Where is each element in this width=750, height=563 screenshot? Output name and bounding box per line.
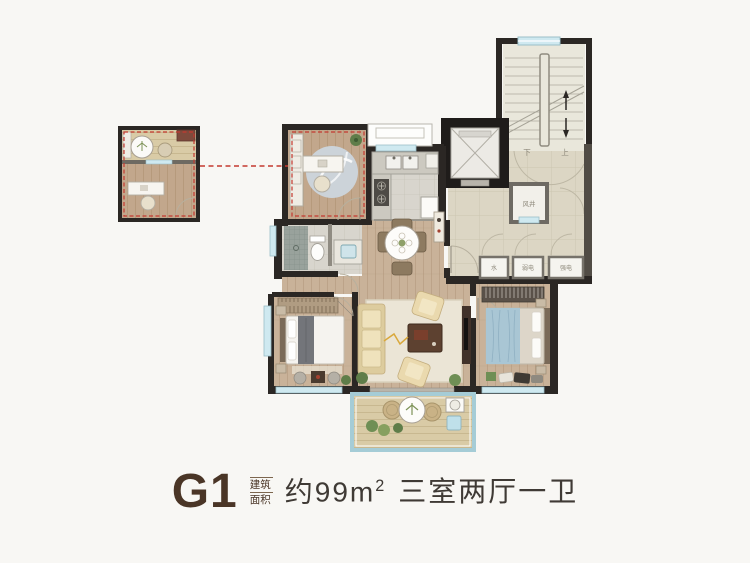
nightstand: [536, 366, 546, 374]
sofa: [358, 304, 385, 374]
plant-icon: [449, 374, 461, 386]
tv-console: [462, 306, 471, 364]
bucket-icon: [447, 416, 461, 430]
hallway-floor: [282, 276, 362, 294]
bedroom2-south-window: [482, 387, 544, 393]
kitchen-window: [376, 145, 416, 151]
master-south-window: [276, 387, 342, 393]
toilet-icon: [310, 236, 325, 261]
stool: [328, 372, 340, 384]
water-meter-label: 水: [491, 264, 497, 272]
plant-icon: [378, 424, 390, 436]
nightstand: [276, 306, 286, 315]
rattan-chair: [423, 403, 441, 421]
shower-area: [284, 226, 308, 270]
master-wardrobe: [278, 298, 338, 313]
elevator-door: [461, 180, 489, 186]
bedroom2-bed: [486, 308, 550, 364]
nightstand: [536, 299, 546, 307]
sideboard: [434, 212, 444, 242]
detail-stool: [158, 143, 172, 157]
nightstand: [276, 364, 286, 373]
bathroom-window: [270, 226, 276, 256]
stair-up-label: 上: [561, 148, 569, 157]
plant-icon: [393, 423, 403, 433]
unit-code: G1: [172, 468, 238, 516]
tv-icon: [464, 318, 468, 350]
balcony: [352, 394, 474, 450]
wind-shaft-label: 风井: [523, 199, 537, 208]
area-value: 约99m: [285, 476, 375, 507]
area-label-line2: 面积: [250, 492, 273, 508]
caption: G1 建筑 面积 约99m2三室两厅一卫: [0, 468, 750, 516]
bathroom-partition: [328, 224, 332, 266]
stool: [294, 372, 306, 384]
elevator: [441, 118, 509, 188]
room-config: 三室两厅一卫: [398, 476, 578, 507]
study-detail-callout: [120, 128, 288, 220]
living-room: [356, 290, 471, 388]
floor-plan-page: 下 上 风井 水 弱电 强电: [0, 0, 750, 563]
detail-chair: [141, 196, 155, 210]
plant-icon: [341, 375, 351, 385]
study-chair: [314, 176, 330, 192]
weak-electric-label: 弱电: [522, 264, 534, 272]
equipment-platform: [368, 124, 432, 146]
coffee-table: [408, 324, 442, 352]
caption-main-text: 约99m2三室两厅一卫: [285, 478, 579, 506]
master-bed: [280, 316, 344, 364]
dining-chair: [392, 262, 412, 275]
wind-shaft-window: [519, 217, 539, 223]
master-bay-window: [264, 306, 271, 356]
stair-rail: [540, 54, 549, 146]
area-value-sup: 2: [375, 477, 386, 495]
pillow: [532, 338, 541, 358]
wind-shaft: 风井: [511, 184, 547, 223]
strong-electric-label: 强电: [560, 264, 572, 272]
pillow: [532, 312, 541, 332]
bedroom2-wardrobe: [482, 287, 544, 302]
area-label: 建筑 面积: [250, 477, 273, 508]
corridor-east-wall: [584, 144, 592, 284]
washbasin-icon: [341, 245, 356, 258]
plant-icon: [366, 420, 378, 432]
detail-window: [146, 160, 172, 164]
rattan-chair: [383, 401, 401, 419]
balcony-slider: [370, 388, 454, 392]
plant-icon: [356, 372, 368, 384]
area-label-line1: 建筑: [250, 477, 273, 493]
stair-down-label: 下: [523, 148, 531, 157]
pillow: [288, 320, 296, 338]
pillow: [288, 342, 296, 360]
